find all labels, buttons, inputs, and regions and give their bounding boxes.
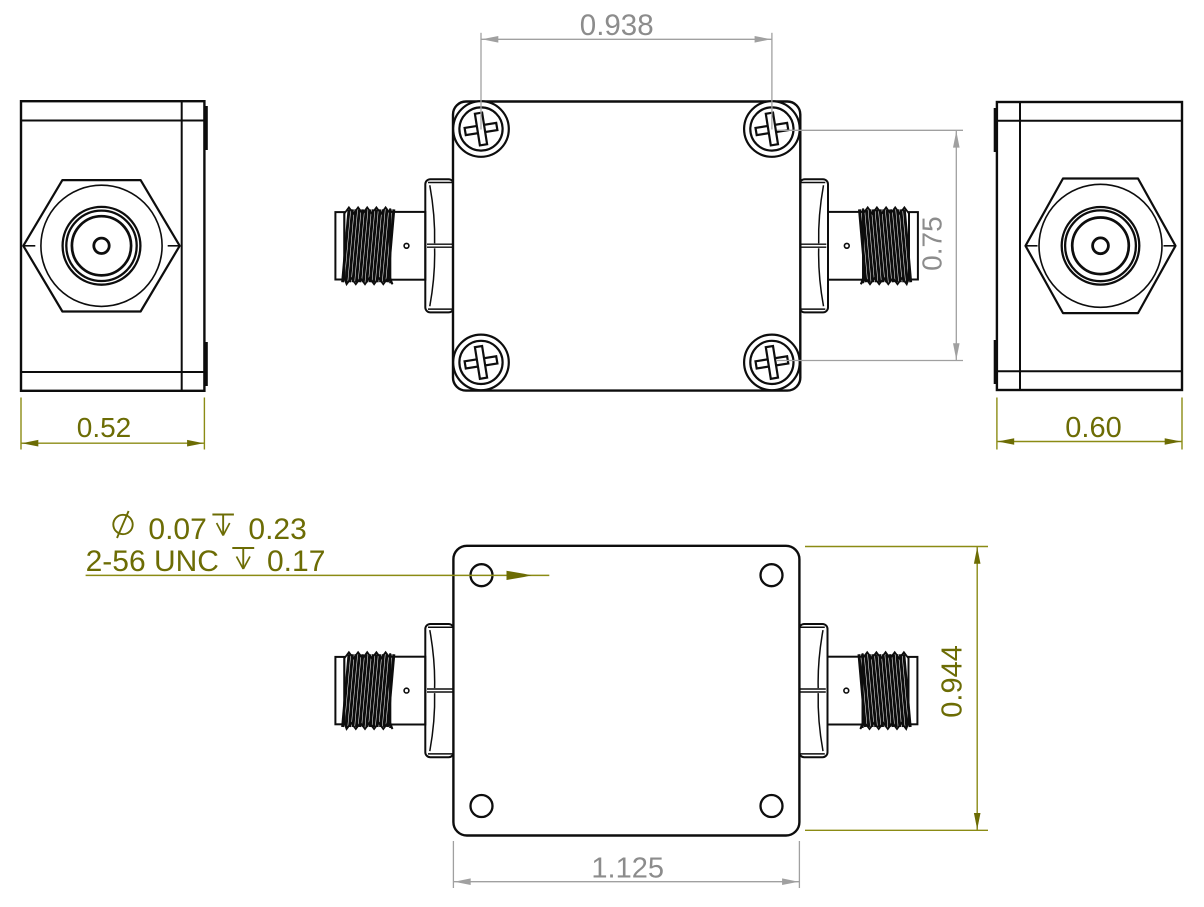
svg-text:0.75: 0.75	[917, 216, 948, 271]
svg-text:0.60: 0.60	[1065, 412, 1121, 444]
svg-text:2-56 UNC: 2-56 UNC	[86, 545, 219, 578]
svg-text:0.944: 0.944	[937, 645, 969, 718]
svg-text:0.07: 0.07	[148, 513, 206, 546]
svg-text:1.125: 1.125	[591, 853, 664, 885]
svg-text:0.23: 0.23	[248, 513, 306, 546]
svg-text:0.17: 0.17	[267, 545, 325, 578]
svg-text:0.52: 0.52	[77, 412, 132, 443]
svg-text:0.938: 0.938	[580, 9, 654, 42]
